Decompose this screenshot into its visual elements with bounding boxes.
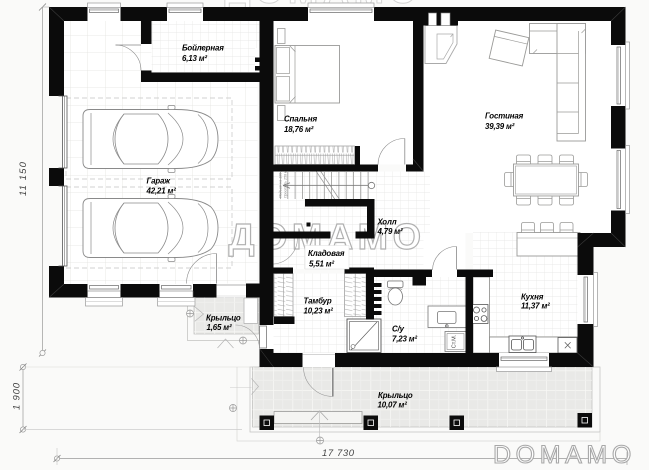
svg-text:6,13 м²: 6,13 м² [182, 54, 207, 63]
svg-text:39,39 м²: 39,39 м² [485, 122, 515, 131]
svg-text:Гостиная: Гостиная [485, 112, 524, 121]
svg-text:Гараж: Гараж [147, 177, 172, 186]
svg-text:5,51 м²: 5,51 м² [309, 260, 334, 269]
svg-text:Крыльцо: Крыльцо [206, 314, 241, 323]
svg-text:11,37 м²: 11,37 м² [521, 302, 550, 311]
svg-text:С/у: С/у [392, 325, 405, 334]
svg-text:1 900: 1 900 [12, 382, 23, 410]
svg-text:7,23 м²: 7,23 м² [392, 335, 417, 344]
svg-text:Бойлерная: Бойлерная [182, 44, 224, 53]
svg-text:4,79 м²: 4,79 м² [377, 227, 403, 236]
svg-text:Спальня: Спальня [284, 115, 317, 124]
svg-text:1,65 м²: 1,65 м² [207, 323, 232, 332]
svg-text:Ст.М.: Ст.М. [452, 334, 458, 348]
svg-text:42,21 м²: 42,21 м² [146, 187, 177, 196]
svg-text:10,07 м²: 10,07 м² [378, 401, 408, 410]
svg-text:Крыльцо: Крыльцо [378, 391, 413, 400]
svg-text:Кладовая: Кладовая [308, 249, 345, 258]
svg-text:10,23 м²: 10,23 м² [304, 307, 334, 316]
svg-text:Холл: Холл [377, 218, 397, 227]
svg-text:Кухня: Кухня [521, 293, 544, 302]
svg-text:18,76 м²: 18,76 м² [284, 125, 314, 134]
svg-text:Тамбур: Тамбур [304, 297, 332, 306]
svg-text:11 150: 11 150 [18, 161, 29, 196]
svg-text:17 730: 17 730 [322, 448, 355, 459]
svg-text:Проступь 250 мм: Проступь 250 мм [284, 168, 288, 198]
svg-text:DOMAMO: DOMAMO [493, 441, 636, 469]
